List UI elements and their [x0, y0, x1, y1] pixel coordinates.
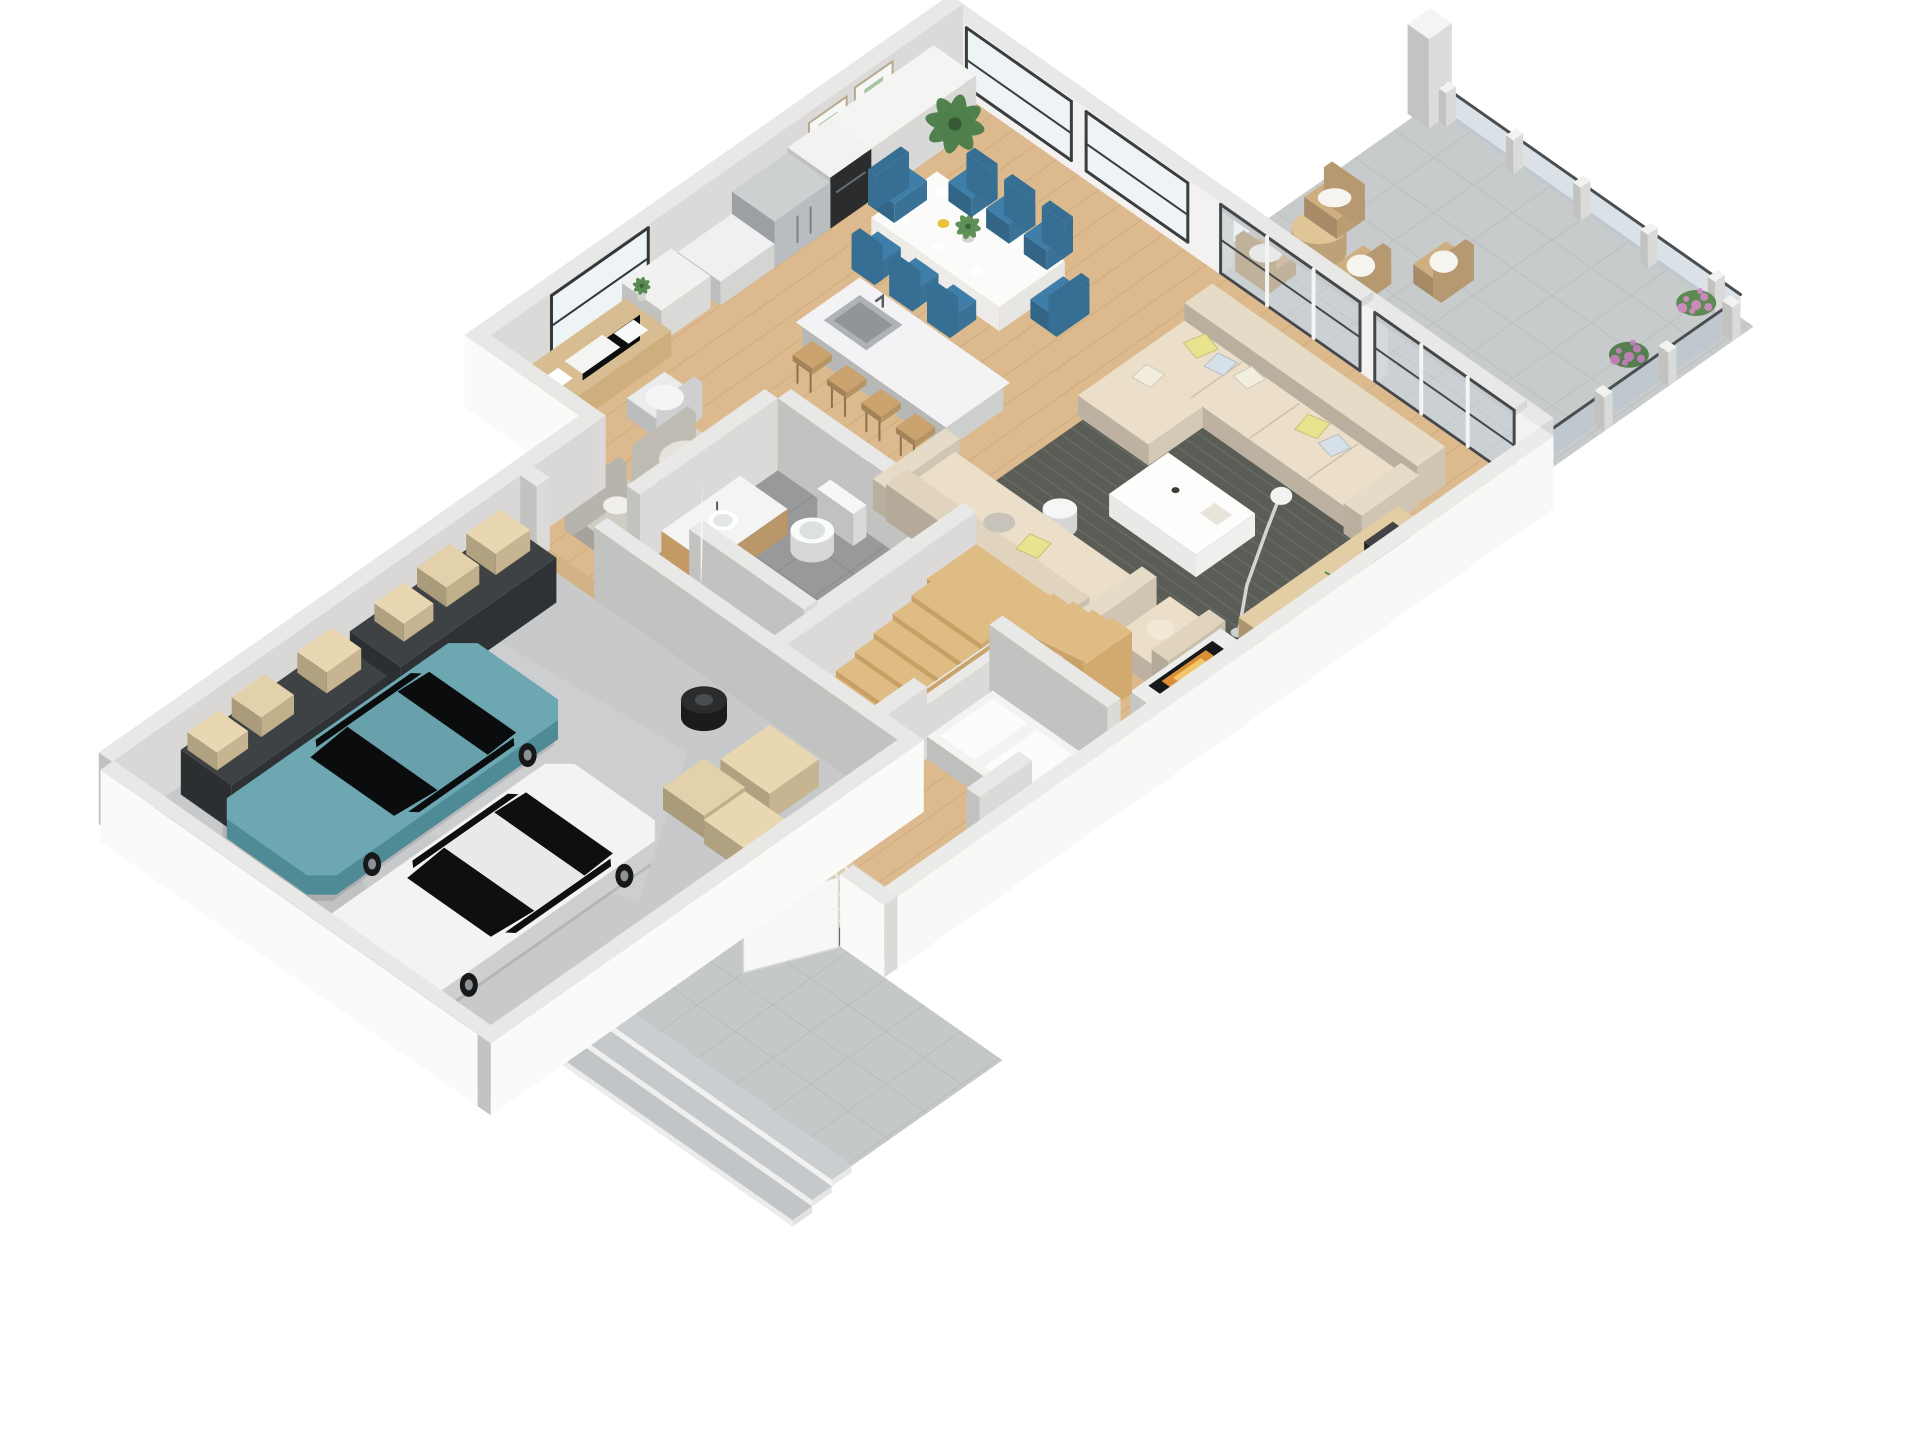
dining-plate-5 [932, 243, 944, 251]
living-armchair-cushion [1147, 619, 1175, 639]
sofa-two-blanket [983, 513, 1015, 533]
tire-stack [681, 686, 727, 731]
coffee-table-cup [1179, 512, 1186, 517]
tire-hub [695, 694, 713, 706]
laundry-cloth [603, 496, 631, 514]
toilet-seat [799, 521, 825, 539]
coffee-table-decor [1172, 487, 1180, 493]
dining-plate-1 [936, 188, 948, 196]
dining-plate-6 [970, 268, 982, 276]
vanity-basin [713, 514, 733, 527]
dining-fruit-bowl [937, 219, 949, 228]
floorplan-svg: 10 39 [0, 0, 1920, 1440]
arc-lamp-shade [1270, 487, 1292, 505]
floorplan-stage: 10 39 [0, 0, 1920, 1440]
